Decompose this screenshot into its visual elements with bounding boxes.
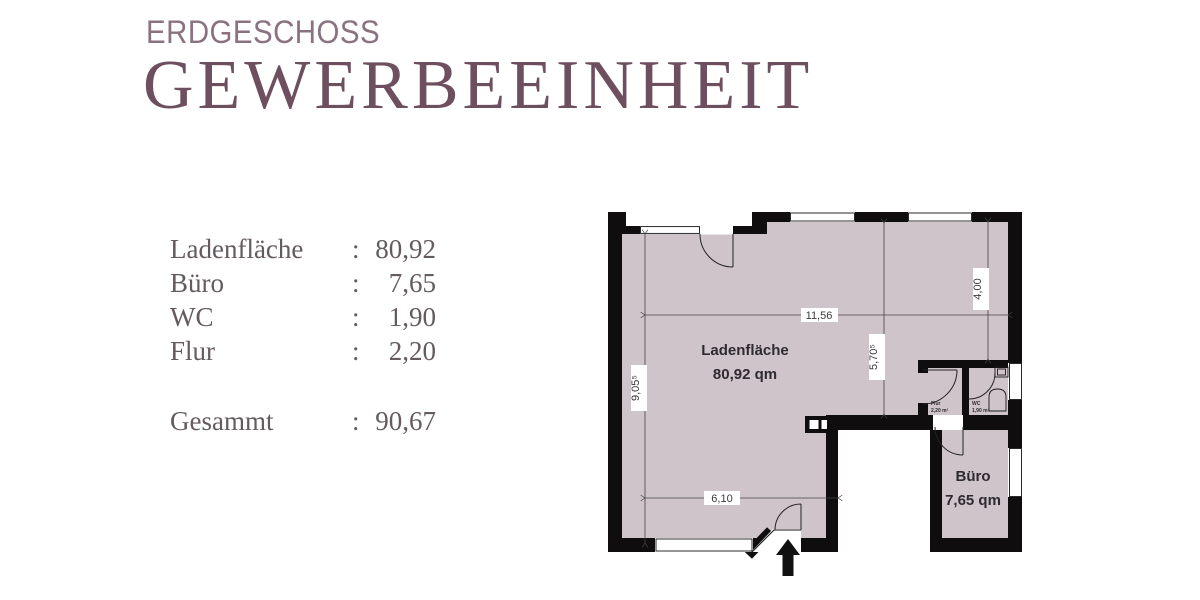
column-inner [810, 420, 819, 429]
area-label: Büro [170, 268, 352, 299]
wall-bottom-right [930, 538, 1022, 552]
colon: : [352, 234, 366, 265]
area-value: 7,65 [366, 268, 436, 299]
area-value: 80,92 [366, 234, 436, 265]
column-symbol [805, 416, 831, 433]
colon: : [352, 302, 366, 333]
door-buero-cut [933, 415, 963, 430]
room-name-wc: WC [972, 401, 981, 407]
wall-inner-horizontal-a [826, 415, 933, 430]
dim-top-width: 11,56 [806, 310, 833, 322]
floor-plan: 11,56 9,05⁵ 5,70⁵ 4,00 6,10 Ladenfläche … [605, 205, 1025, 585]
window-wc-cut [1008, 363, 1022, 400]
area-label: Flur [170, 336, 352, 367]
exterior-strip [622, 212, 752, 226]
room-name-ladenflaeche: Ladenfläche [701, 342, 789, 359]
area-row-total: Gesammt : 90,67 [170, 406, 436, 440]
page: ERDGESCHOSS GEWERBEEINHEIT Ladenfläche :… [0, 0, 1200, 600]
notch-courtyard [838, 430, 930, 552]
wall-flur-wc-top [918, 360, 1008, 368]
wall-notch-left [826, 417, 838, 552]
door-top-left-cut [700, 226, 733, 235]
wall-flur-wc-divider [962, 368, 969, 415]
area-row-ladenflaeche: Ladenfläche : 80,92 [170, 234, 436, 268]
room-area-flur: 2,20 m² [931, 408, 949, 414]
window-top-right-cut [908, 212, 972, 222]
wall-flur-stub-bottom [918, 403, 928, 417]
colon: : [352, 406, 366, 437]
floor-area [622, 222, 1008, 538]
room-area-ladenflaeche: 80,92 qm [713, 366, 777, 383]
wall-inner-horizontal-b [963, 415, 1008, 430]
area-label: Gesammt [170, 406, 352, 437]
wall-left [608, 212, 622, 552]
colon: : [352, 268, 366, 299]
area-table: Ladenfläche : 80,92 Büro : 7,65 WC : 1,9… [170, 234, 436, 440]
area-value: 90,67 [366, 406, 436, 437]
window-top-left-cut [640, 226, 700, 234]
wall-flur-stub-top [918, 360, 928, 373]
floor-label: ERDGESCHOSS [146, 16, 760, 48]
window-buero-cut [1008, 448, 1022, 497]
page-title: GEWERBEEINHEIT [143, 51, 813, 121]
column-inner [822, 420, 828, 429]
room-area-buero: 7,65 qm [945, 492, 1001, 509]
area-row-flur: Flur : 2,20 [170, 336, 436, 370]
area-value: 2,20 [366, 336, 436, 367]
dim-middle-height: 5,70⁵ [868, 344, 880, 370]
area-label: WC [170, 302, 352, 333]
wall-notch-right [930, 417, 942, 552]
area-row-wc: WC : 1,90 [170, 302, 436, 336]
area-value: 1,90 [366, 302, 436, 333]
room-area-wc: 1,90 m² [972, 408, 990, 414]
header: ERDGESCHOSS GEWERBEEINHEIT [146, 16, 813, 121]
area-row-buero: Büro : 7,65 [170, 268, 436, 302]
colon: : [352, 336, 366, 367]
room-name-flur: Flur [931, 401, 940, 407]
dim-left-height: 9,05⁵ [630, 375, 642, 401]
area-label: Ladenfläche [170, 234, 352, 265]
dim-right-height: 4,00 [972, 278, 984, 299]
dim-bottom-width: 6,10 [711, 493, 732, 505]
window-bottom-cut [655, 538, 753, 552]
room-name-buero: Büro [956, 468, 991, 485]
window-top-mid-cut [790, 212, 855, 222]
